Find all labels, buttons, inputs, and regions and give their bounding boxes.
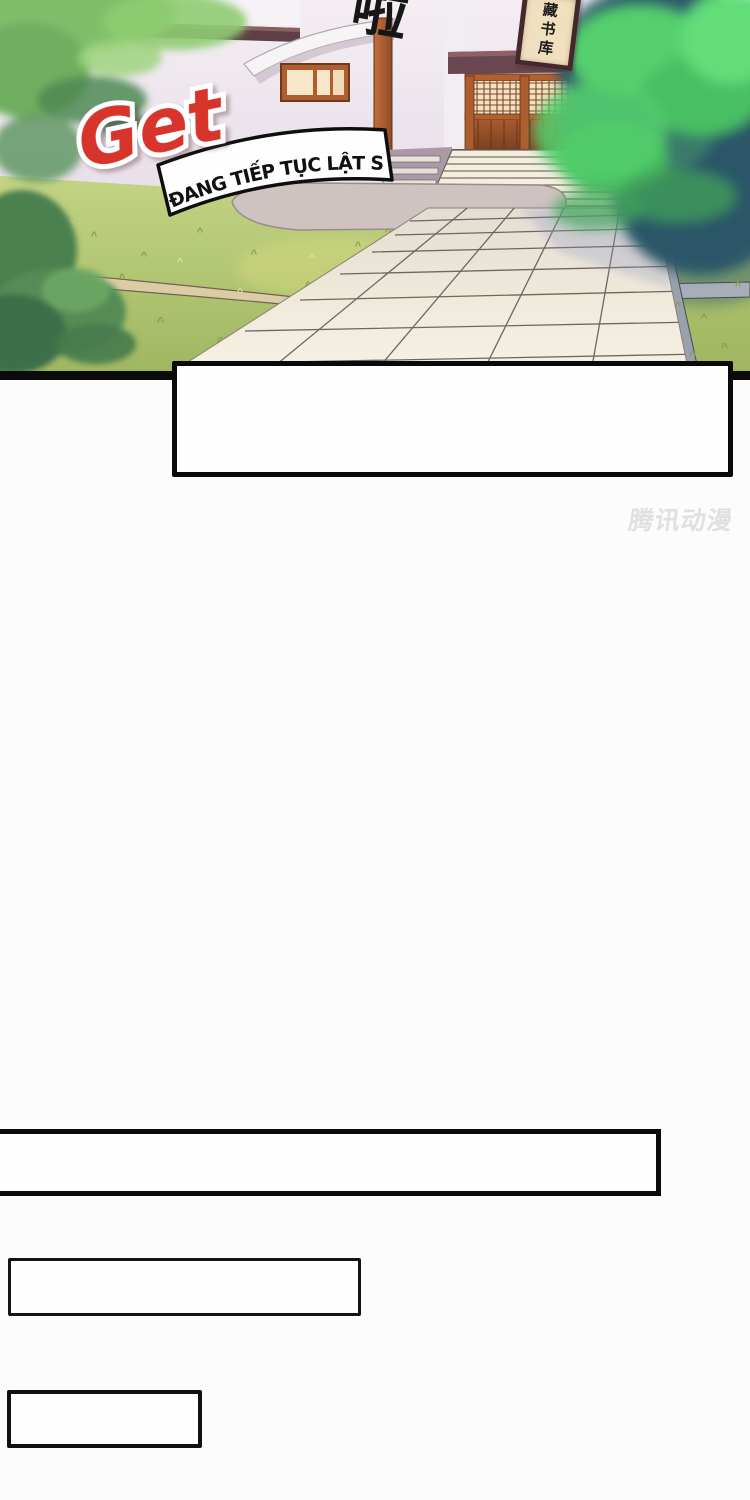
comic-page: ĐANG TIẾP TỤC LẬT SÁCH.... Get 啦 藏书库 腾讯动… xyxy=(0,0,750,1500)
watermark-text: 腾讯动漫 xyxy=(612,501,749,537)
library-sign-text: 藏书库 xyxy=(534,0,562,59)
empty-panel-medium xyxy=(8,1258,361,1316)
sound-effect-text: 啦 xyxy=(348,0,413,44)
empty-panel-small xyxy=(7,1390,202,1448)
library-sign: 藏书库 xyxy=(515,0,582,71)
speech-box-empty xyxy=(172,361,733,477)
lattice-window xyxy=(281,64,349,101)
comic-panel-illustration: ĐANG TIẾP TỤC LẬT SÁCH.... Get xyxy=(0,0,750,380)
empty-panel-wide xyxy=(0,1129,661,1196)
